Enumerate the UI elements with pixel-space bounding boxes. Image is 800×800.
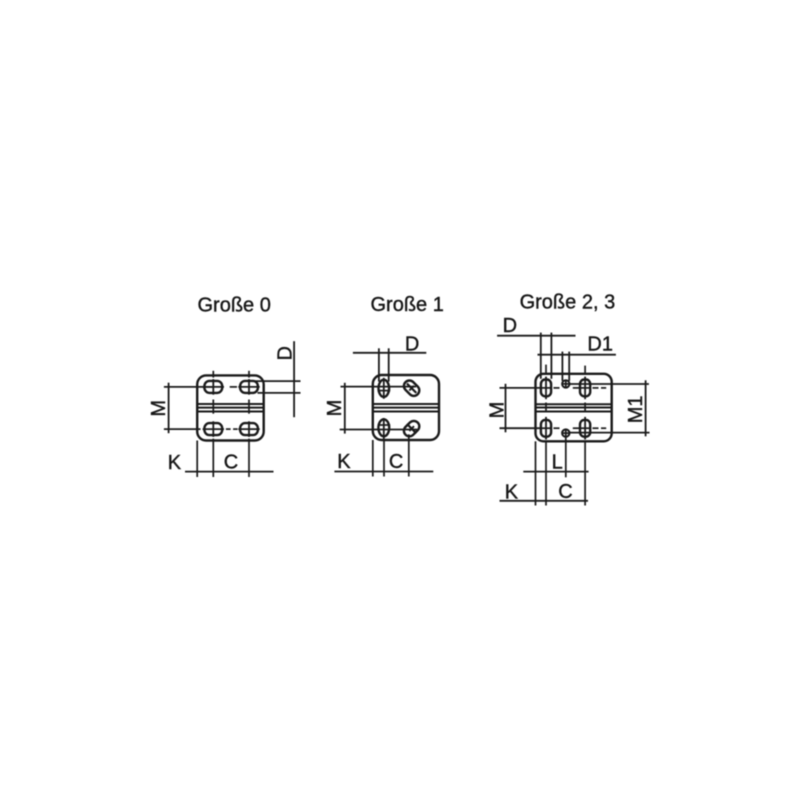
- svg-text:M: M: [324, 400, 346, 417]
- svg-text:D: D: [405, 333, 419, 355]
- svg-text:K: K: [505, 482, 519, 504]
- svg-text:K: K: [337, 451, 351, 473]
- svg-text:Große 2, 3: Große 2, 3: [520, 292, 616, 314]
- svg-text:C: C: [389, 451, 403, 473]
- svg-text:D: D: [274, 346, 296, 360]
- svg-text:M1: M1: [625, 396, 647, 424]
- svg-text:L: L: [552, 452, 563, 474]
- svg-text:M: M: [486, 402, 508, 419]
- svg-text:K: K: [168, 452, 182, 474]
- svg-text:D: D: [503, 315, 517, 337]
- svg-text:C: C: [558, 481, 572, 503]
- svg-text:C: C: [224, 451, 238, 473]
- svg-text:Große 1: Große 1: [371, 294, 444, 316]
- svg-text:Große 0: Große 0: [198, 294, 271, 316]
- svg-text:M: M: [148, 400, 170, 417]
- svg-text:D1: D1: [587, 334, 613, 356]
